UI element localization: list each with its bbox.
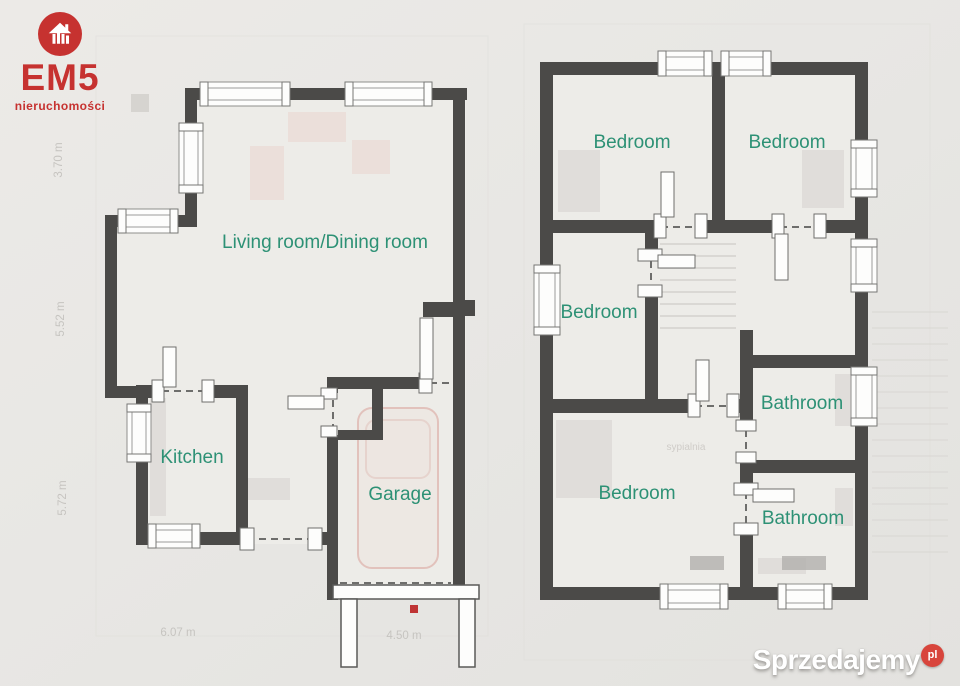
wall-segment (328, 377, 427, 389)
sprzedajemy-pl-badge: pl (921, 644, 944, 667)
wall-segment (105, 215, 117, 398)
room-label-bathroom-1: Bathroom (761, 393, 843, 414)
door-jamb (814, 214, 826, 238)
background-square (131, 94, 149, 112)
furniture-first-floor (802, 150, 844, 208)
red-accent-dot (410, 605, 418, 613)
em5-logo-mark (38, 12, 82, 56)
window (778, 584, 832, 609)
wall-segment (740, 330, 753, 427)
wall-segment (338, 430, 383, 440)
radiator (782, 556, 826, 570)
door-jamb (695, 214, 707, 238)
sprzedajemy-watermark-text: Sprzedajemy (753, 644, 920, 675)
window (534, 265, 560, 335)
em5-logo-text: EM5 (10, 59, 110, 96)
window (118, 209, 178, 233)
wall-segment (740, 355, 855, 368)
door-jamb (734, 523, 758, 535)
porch-post (459, 599, 475, 667)
room-label-kitchen: Kitchen (160, 447, 223, 468)
door-leaf (753, 489, 794, 502)
wall-segment (740, 531, 753, 600)
door-leaf (696, 360, 709, 401)
door-jamb (727, 394, 739, 417)
door-jamb (202, 380, 214, 402)
wall-segment (645, 288, 658, 412)
wall-segment (712, 75, 725, 233)
house-icon (45, 19, 75, 49)
window (851, 140, 877, 197)
radiator (690, 556, 724, 570)
window (851, 367, 877, 426)
floorplan-canvas: Living room/Dining room Kitchen Garage B… (0, 0, 960, 686)
window (179, 123, 203, 193)
furniture-kitchen-hall (248, 478, 290, 500)
room-label-bedroom-3: Bedroom (560, 302, 637, 323)
window (851, 239, 877, 292)
porch-beam (333, 585, 479, 599)
door-leaf (420, 318, 433, 379)
door-jamb (240, 528, 254, 550)
room-label-bedroom-2: Bedroom (748, 132, 825, 153)
door-jamb (638, 285, 662, 297)
accents (410, 605, 418, 613)
em5-logo: EM5 nieruchomości (10, 10, 110, 113)
window (345, 82, 432, 106)
floor-plans: Living room/Dining room Kitchen Garage B… (0, 0, 960, 686)
porch-post (341, 599, 357, 667)
door-leaf (661, 172, 674, 217)
door-jamb (321, 426, 337, 437)
dim-label-552: 5.52 m (55, 301, 67, 336)
faint-room-label-sypialnia: sypialnia (667, 442, 706, 453)
room-label-bedroom-4: Bedroom (598, 483, 675, 504)
dim-label-607: 6.07 m (160, 627, 195, 639)
door-jamb (736, 452, 756, 463)
wall-segment (423, 302, 465, 317)
wall-segment (540, 220, 658, 233)
window (721, 51, 771, 76)
door-jamb (308, 528, 322, 550)
room-label-bathroom-2: Bathroom (762, 508, 844, 529)
furniture-living (288, 112, 346, 142)
wall-segment (725, 220, 777, 233)
door-jamb (152, 380, 164, 402)
window (200, 82, 290, 106)
wall-segment (465, 300, 475, 316)
room-label-bedroom-1: Bedroom (593, 132, 670, 153)
door-leaf (775, 234, 788, 280)
door-leaf (288, 396, 324, 409)
dim-label-572: 5.72 m (57, 480, 69, 515)
room-label-living-dining: Living room/Dining room (222, 232, 428, 253)
window (660, 584, 728, 609)
window (658, 51, 712, 76)
wall-segment (453, 88, 465, 314)
sprzedajemy-watermark: Sprzedajemypl (753, 644, 944, 676)
window (148, 524, 200, 548)
wall-segment (453, 314, 465, 598)
wall-segment (540, 399, 692, 413)
wall-segment (750, 460, 855, 473)
door-jamb (654, 214, 666, 238)
furniture-living (250, 146, 284, 200)
door-leaf (658, 255, 695, 268)
room-label-garage: Garage (368, 484, 431, 505)
door-leaf (163, 347, 176, 387)
wall-segment (236, 385, 248, 545)
door-jamb (736, 420, 756, 431)
window (127, 404, 151, 462)
wall-segment (327, 435, 338, 600)
wall-segment (456, 377, 465, 389)
em5-logo-subtext: nieruchomości (10, 99, 110, 113)
wall-segment (823, 220, 855, 233)
dim-label-370: 3.70 m (53, 142, 65, 177)
furniture-living (352, 140, 390, 174)
dim-label-450: 4.50 m (386, 630, 421, 642)
furniture-first-floor (558, 150, 600, 212)
